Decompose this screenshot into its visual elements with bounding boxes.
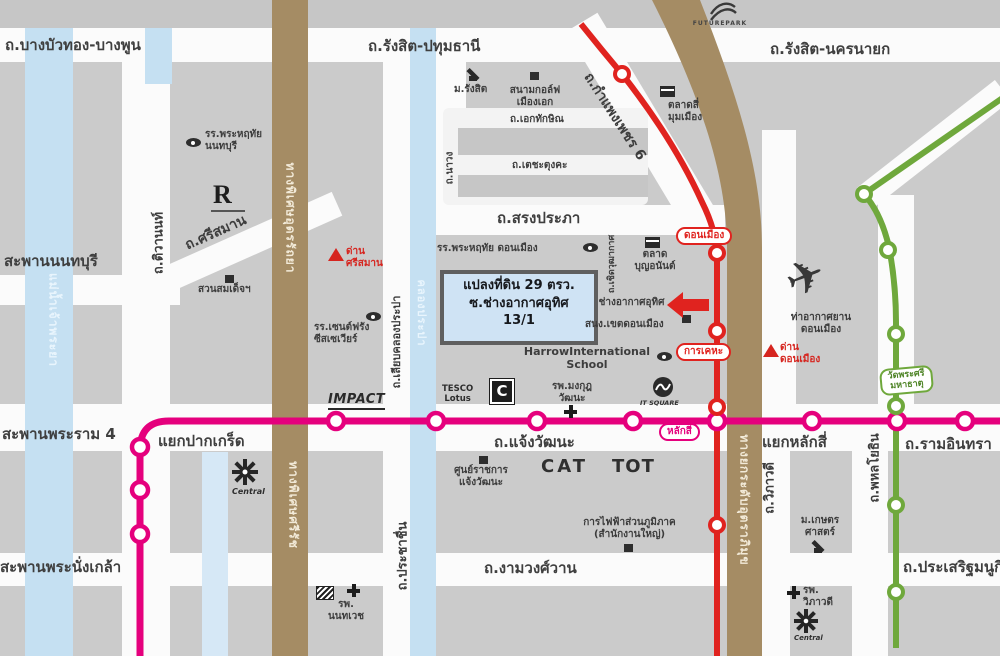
road-label-phahonyothin: ถ.พหลโยธิน	[864, 433, 885, 502]
place-pea-hq: การไฟฟ้าส่วนภูมิภาค (สำนักงานใหญ่)	[572, 517, 687, 541]
map-canvas: ถ.บางบัวทอง-บางพูน ถ.รังสิต-ปทุมธานี ถ.ร…	[0, 0, 1000, 656]
road-label-songprapha: ถ.สรงประภา	[497, 210, 580, 228]
place-saint-francis: รร.เซนต์ฟรัง ซีสเซเวียร์	[314, 322, 369, 346]
place-mongkutwattana-hospital: รพ.มงกุฎ วัฒนะ	[543, 381, 601, 405]
tot-logo: TOT	[612, 456, 655, 477]
junction-label-pakkret: แยกปากเกร็ด	[158, 433, 245, 451]
cat-logo: CAT	[541, 456, 588, 477]
toll-triangle-icon	[763, 344, 779, 357]
road-label-ngamwongwan: ถ.งามวงศ์วาน	[484, 560, 577, 578]
place-bun-anan-market: ตลาด บุญอนันต์	[623, 249, 687, 273]
place-si-mum-muang-market: ตลาดสี่ มุมเมือง	[668, 100, 702, 124]
hospital-cross-icon	[787, 586, 800, 599]
road-label-choet-wutthakat: ถ.เชิดวุฒากาศ	[604, 235, 618, 293]
station-pill-kankheha: การเคหะ	[676, 343, 731, 361]
highlight-line1: แปลงที่ดิน 29 ตรว.	[444, 277, 594, 295]
road-label-rangsit-pathumthani: ถ.รังสิต-ปทุมธานี	[368, 38, 480, 56]
bridge-label-nonthaburi: สะพานนนทบุรี	[4, 253, 98, 271]
school-icon	[366, 312, 381, 321]
tollway-label-uttraphimuk: ทางยกระดับอุตราภิมุข	[735, 434, 754, 565]
place-harrow-school: HarrowInternational School	[518, 346, 656, 372]
station-pill-laksi: หลักสี่	[659, 423, 700, 441]
it-square-logo: IT SQUARE	[640, 399, 679, 407]
canal-label-prapa: คลองประปา	[413, 279, 431, 346]
market-icon	[660, 86, 675, 97]
building-icon	[530, 72, 539, 80]
expressway-label-si-rat: ทางพิเศษศรีรัช	[284, 461, 303, 549]
c-mark-logo: C	[489, 378, 515, 405]
impact-logo: IMPACT	[328, 392, 385, 410]
road-label-liap-khlong-prapa: ถ.เลียบคลองประปา	[387, 296, 405, 389]
hospital-cross-icon	[564, 405, 577, 418]
road-label-techatungka: ถ.เตชะตุงคะ	[512, 160, 567, 172]
tesco-lotus-logo: TESCO Lotus	[442, 384, 473, 404]
place-muang-ake-golf: สนามกอล์ฟ เมืองเอก	[502, 85, 568, 109]
road-label-viphavadi: ถ.วิภาวดี	[759, 462, 780, 514]
place-suan-somdet: สวนสมเด็จฯ	[198, 284, 251, 296]
futurepark-swoosh-icon	[708, 0, 738, 22]
place-phrahruethai-nonthaburi: รร.พระหฤทัย นนทบุรี	[205, 129, 262, 153]
it-square-icon	[652, 376, 674, 398]
central-flower-icon	[231, 458, 259, 486]
school-icon	[657, 352, 672, 361]
school-icon	[186, 138, 201, 147]
station-pill-wat-phra-si: วัดพระศรี มหาธาตุ	[879, 365, 934, 396]
place-kasetsart-university: ม.เกษตร ศาสตร์	[794, 515, 846, 539]
toll-srisaman: ด่าน ศรีสมาน	[346, 246, 383, 270]
place-viphavadi-hospital: รพ. วิภาวดี	[803, 585, 833, 609]
road-label-ramindra: ถ.รามอินทรา	[905, 436, 992, 454]
building-icon	[225, 275, 234, 283]
road-label-soi-chang-akat: ซ.ช่างอากาศอุทิศ	[588, 297, 664, 309]
toll-triangle-icon	[328, 248, 344, 261]
hospital-cross-icon	[347, 584, 360, 597]
road-label-nawong: ถ.นาวง	[443, 152, 458, 185]
station-pill-donmueang: ดอนเมือง	[676, 227, 732, 245]
expressway-label-udon-ratthaya: ทางพิเศษอุดรรัถยา	[281, 163, 300, 274]
futurepark-logo: FUTUREPARK	[688, 20, 752, 27]
junction-label-laksi: แยกหลักสี่	[762, 434, 827, 452]
central-pakkret-logo: Central	[232, 487, 265, 496]
highlight-line2: ซ.ช่างอากาศอุทิศ	[444, 295, 594, 313]
r-logo-bar	[211, 210, 245, 212]
highlight-line3: 13/1	[444, 312, 594, 330]
bridge-label-phranangklao: สะพานพระนั่งเกล้า	[0, 559, 121, 577]
school-icon	[583, 243, 598, 252]
central-flower-icon	[793, 608, 819, 634]
graduation-cap-icon	[465, 70, 481, 82]
place-donmueang-district-office: สนง.เขตดอนเมือง	[585, 319, 664, 331]
building-icon	[479, 456, 488, 464]
toll-donmueang: ด่าน ดอนเมือง	[780, 342, 820, 366]
place-donmueang-airport: ท่าอากาศยาน ดอนเมือง	[788, 312, 854, 336]
river-label-chaophraya: แม่น้ำเจ้าพระยา	[44, 273, 63, 367]
r-logo: R	[213, 182, 232, 208]
place-government-center: ศูนย์ราชการ แจ้งวัฒนะ	[446, 465, 516, 489]
market-icon	[645, 237, 660, 248]
road-label-prasertmanukit: ถ.ประเสริฐมนูกิจ	[903, 559, 1000, 577]
graduation-cap-icon	[810, 542, 826, 554]
road-label-chaengwattana: ถ.แจ้งวัฒนะ	[494, 434, 575, 452]
place-rangsit-university: ม.รังสิต	[454, 84, 487, 96]
road-label-rangsit-nakhonnayok: ถ.รังสิต-นครนายก	[770, 41, 890, 59]
highlight-arrow-icon	[667, 292, 711, 318]
road-label-bangbuathong: ถ.บางบัวทอง-บางพูน	[5, 37, 141, 55]
place-phrahruethai-donmueang: รร.พระหฤทัย ดอนเมือง	[437, 243, 538, 255]
central-ramindra-logo: Central	[794, 634, 823, 642]
highlight-plot-box: แปลงที่ดิน 29 ตรว. ซ.ช่างอากาศอุทิศ 13/1	[440, 270, 598, 345]
building-icon	[624, 544, 633, 552]
hospital-building-icon	[316, 586, 334, 600]
road-label-prachachuen: ถ.ประชาชื่น	[392, 522, 413, 591]
bridge-label-rama4: สะพานพระราม 4	[2, 426, 116, 444]
road-label-tiwanon: ถ.ติวานนท์	[148, 212, 169, 274]
place-nonthavej-hospital: รพ. นนทเวช	[315, 599, 377, 623]
road-label-ekkathaksin: ถ.เอกทักษิณ	[510, 114, 564, 126]
